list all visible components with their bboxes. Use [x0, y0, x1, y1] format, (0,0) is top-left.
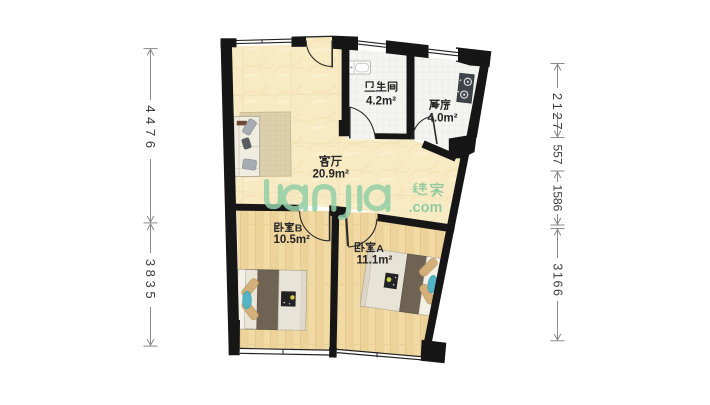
svg-text:A: A: [376, 243, 384, 255]
svg-text:4476: 4476: [143, 105, 158, 152]
svg-text:1586: 1586: [551, 185, 565, 212]
svg-text:20.9m²: 20.9m²: [313, 169, 350, 181]
svg-text:3835: 3835: [143, 259, 158, 302]
svg-text:B: B: [295, 223, 303, 235]
svg-text:10.5m²: 10.5m²: [274, 234, 311, 246]
svg-text:4.0m²: 4.0m²: [428, 113, 458, 125]
svg-text:4.2m²: 4.2m²: [366, 96, 396, 108]
svg-text:557: 557: [551, 144, 565, 164]
svg-text:11.1m²: 11.1m²: [357, 255, 393, 267]
svg-text:3166: 3166: [551, 263, 565, 297]
svg-text:2127: 2127: [550, 93, 565, 132]
svg-text:.com: .com: [409, 200, 443, 216]
